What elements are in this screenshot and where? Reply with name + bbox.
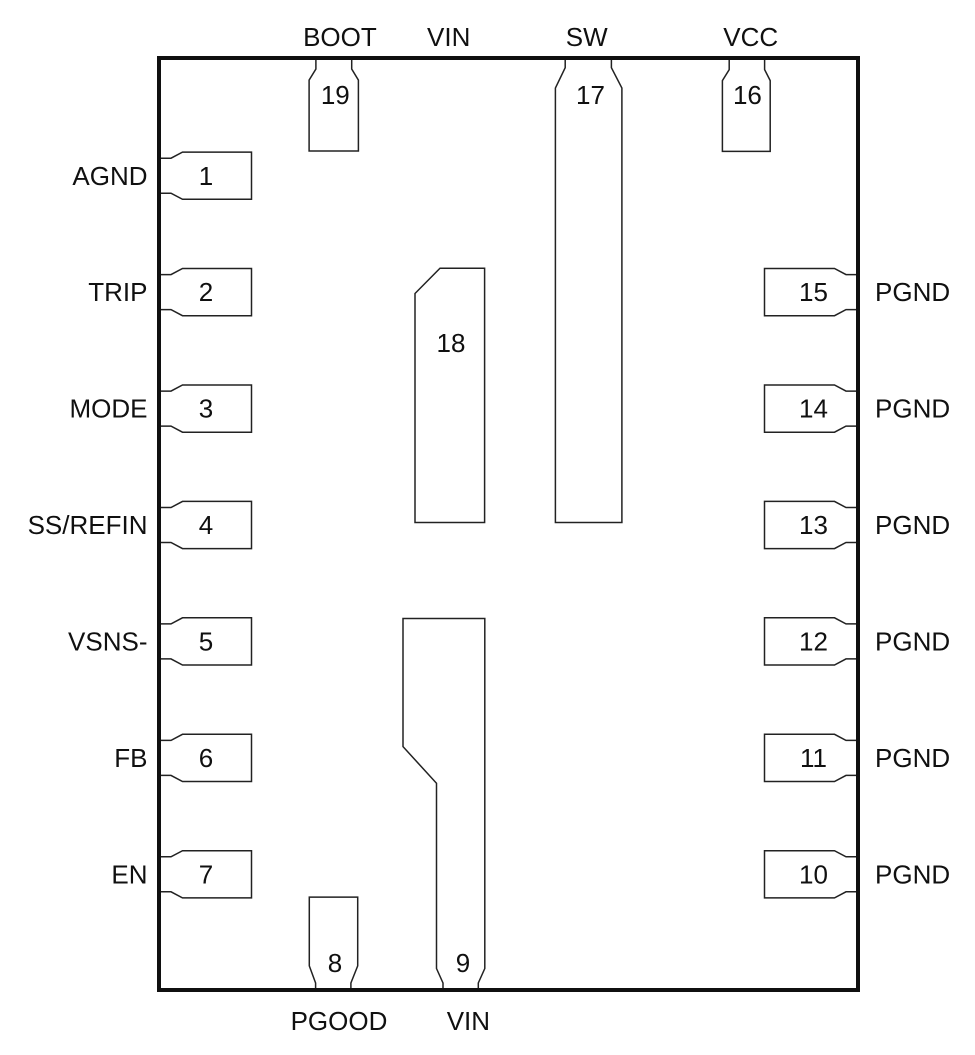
svg-text:AGND: AGND <box>72 161 147 191</box>
svg-text:SW: SW <box>566 22 608 52</box>
svg-text:6: 6 <box>199 743 213 773</box>
svg-text:BOOT: BOOT <box>303 22 377 52</box>
svg-text:3: 3 <box>199 394 213 424</box>
svg-text:15: 15 <box>799 277 828 307</box>
svg-text:19: 19 <box>321 80 350 110</box>
svg-text:PGND: PGND <box>875 627 950 657</box>
svg-text:4: 4 <box>199 510 213 540</box>
svg-text:VCC: VCC <box>723 22 778 52</box>
svg-text:14: 14 <box>799 394 828 424</box>
svg-text:EN: EN <box>111 859 147 889</box>
svg-text:PGOOD: PGOOD <box>291 1006 388 1036</box>
svg-text:2: 2 <box>199 277 213 307</box>
svg-text:9: 9 <box>456 948 470 978</box>
svg-text:VSNS-: VSNS- <box>68 627 147 657</box>
svg-text:MODE: MODE <box>70 394 148 424</box>
svg-text:8: 8 <box>328 948 342 978</box>
svg-text:1: 1 <box>199 161 213 191</box>
svg-text:PGND: PGND <box>875 743 950 773</box>
svg-text:18: 18 <box>437 328 466 358</box>
svg-text:16: 16 <box>733 80 762 110</box>
svg-text:10: 10 <box>799 859 828 889</box>
svg-text:12: 12 <box>799 627 828 657</box>
svg-text:17: 17 <box>576 80 605 110</box>
svg-text:VIN: VIN <box>447 1006 490 1036</box>
svg-text:5: 5 <box>199 627 213 657</box>
svg-text:FB: FB <box>114 743 147 773</box>
svg-text:PGND: PGND <box>875 510 950 540</box>
svg-text:TRIP: TRIP <box>88 277 147 307</box>
svg-text:PGND: PGND <box>875 394 950 424</box>
svg-text:7: 7 <box>199 859 213 889</box>
svg-text:PGND: PGND <box>875 277 950 307</box>
svg-text:SS/REFIN: SS/REFIN <box>28 510 148 540</box>
svg-text:13: 13 <box>799 510 828 540</box>
svg-text:PGND: PGND <box>875 859 950 889</box>
svg-text:VIN: VIN <box>427 22 470 52</box>
svg-text:11: 11 <box>800 743 827 773</box>
